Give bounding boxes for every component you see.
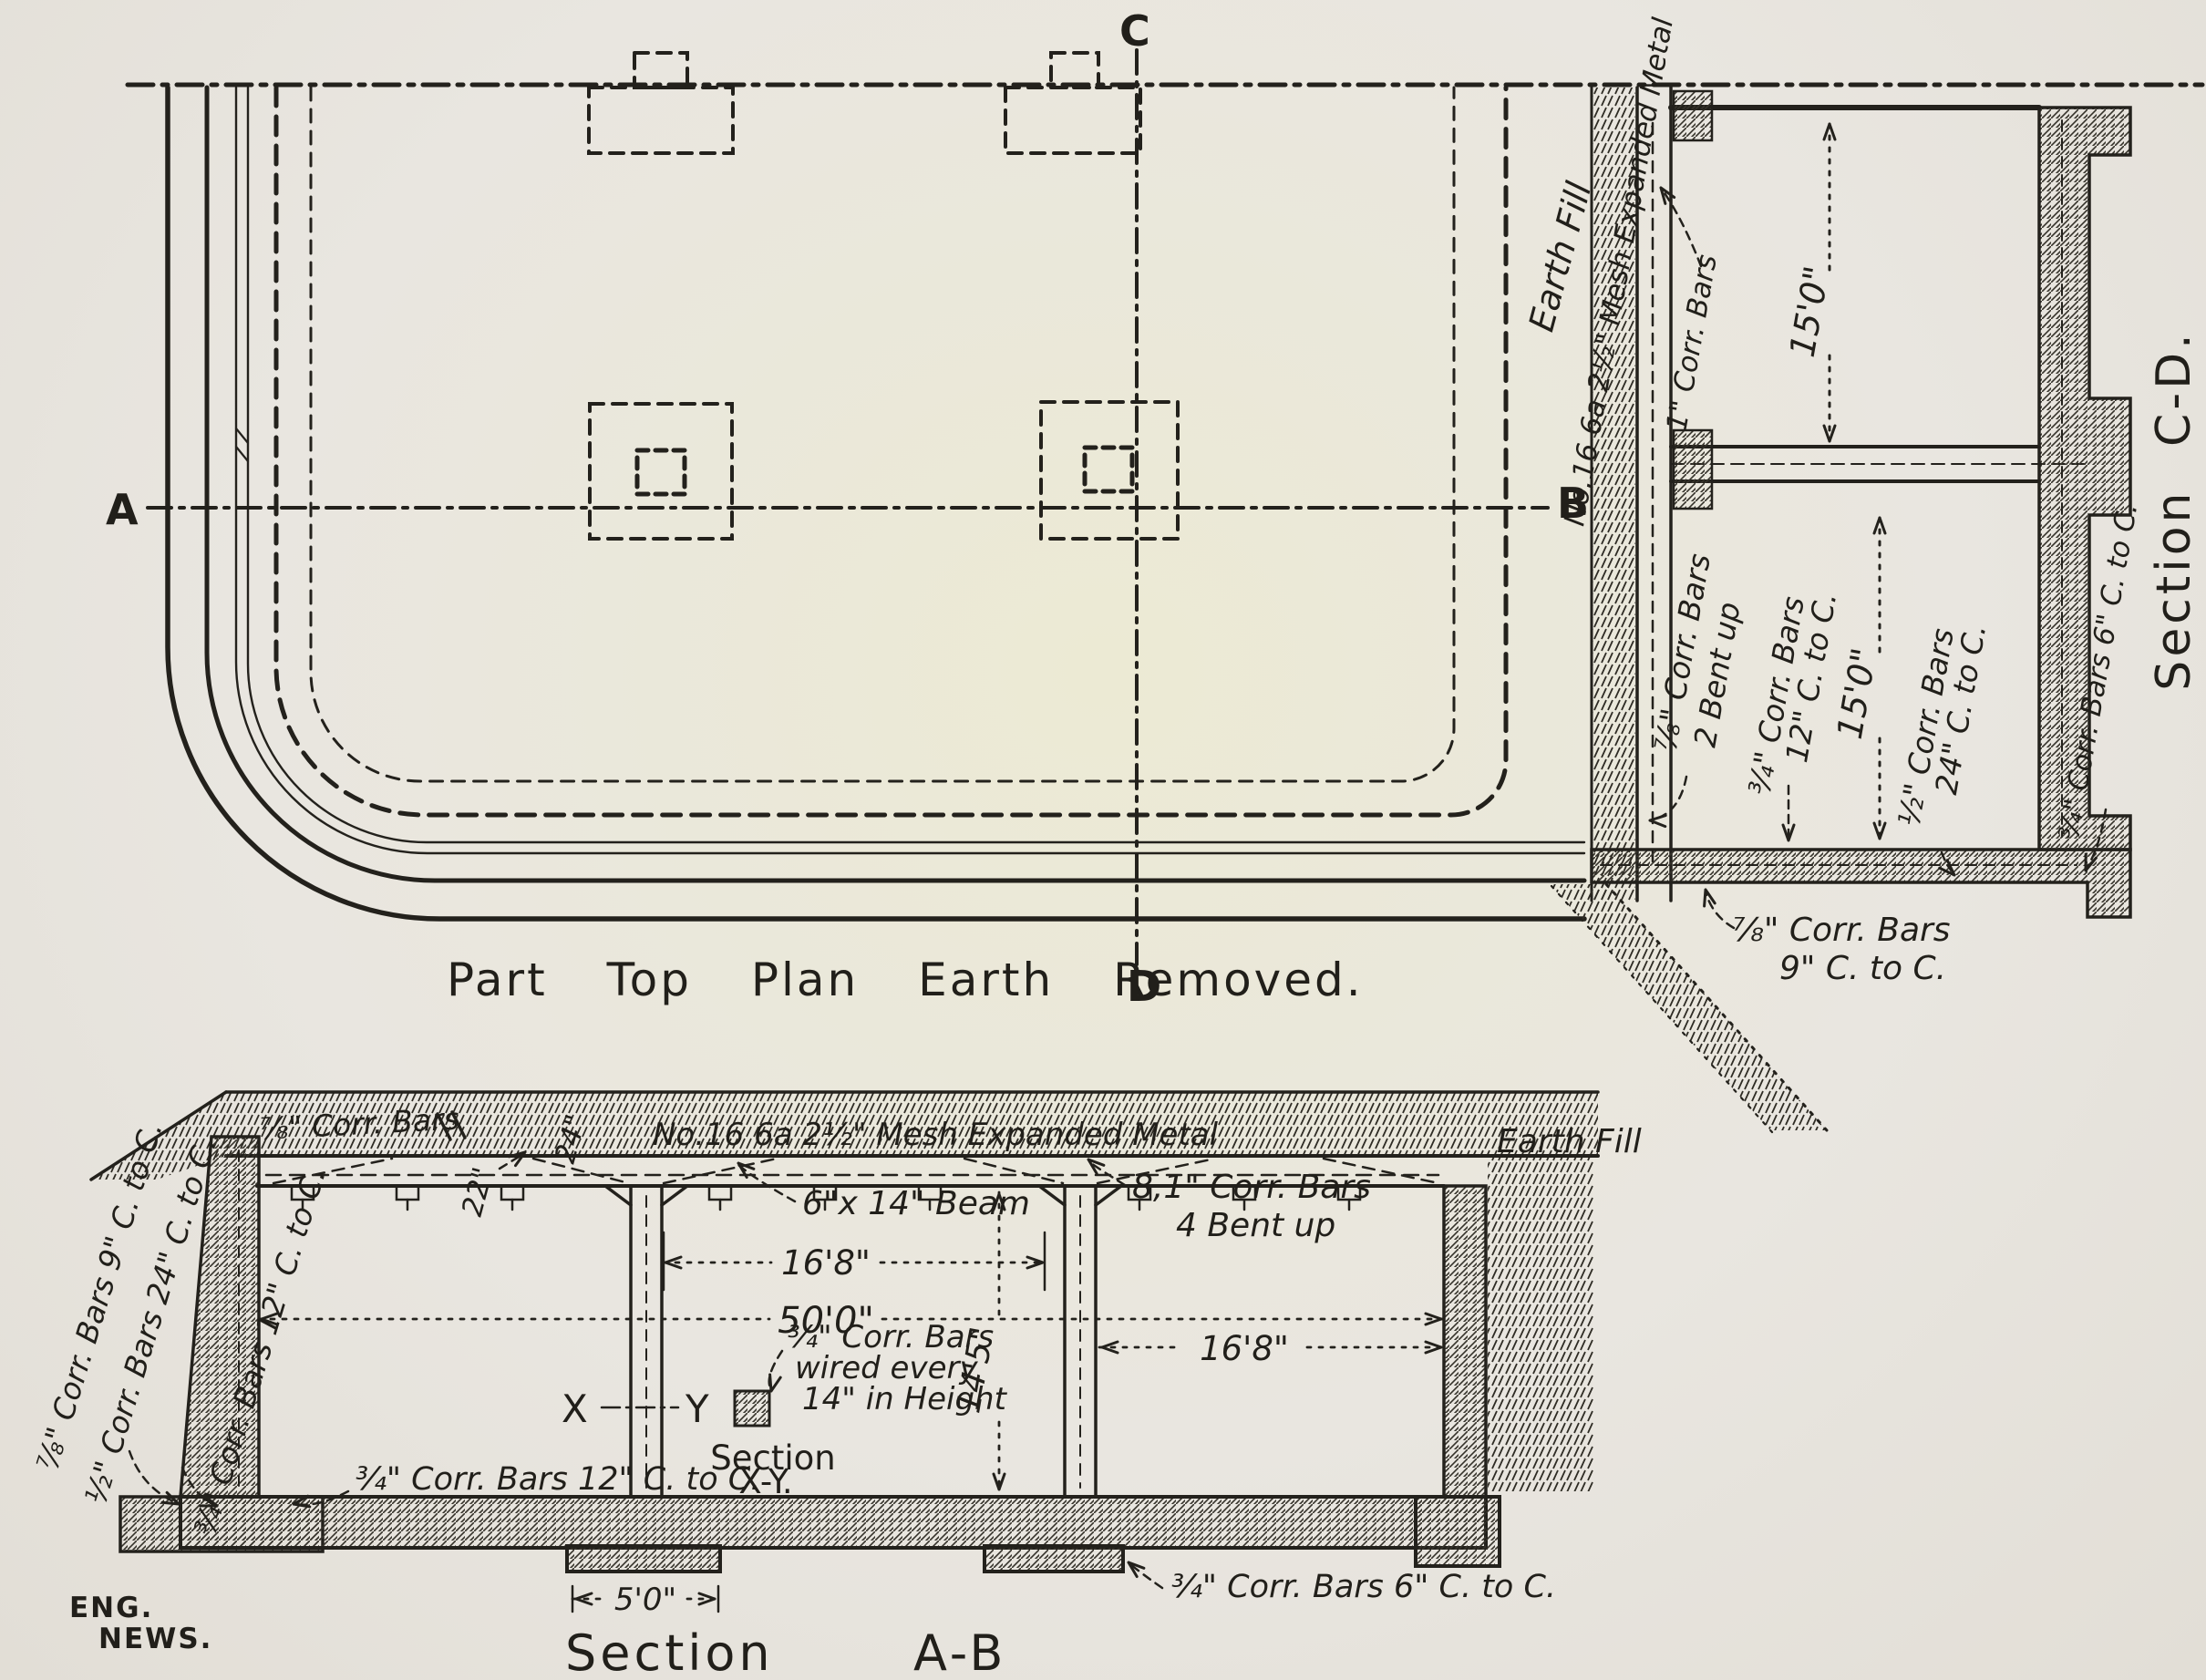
wall-outer-line — [168, 88, 1584, 919]
joint-jog — [236, 428, 248, 461]
cd-dim-15-top: 15'0" — [1782, 263, 1838, 360]
beam-section — [1674, 91, 1712, 140]
right-wall — [1444, 1186, 1486, 1497]
ab-marker-x: X — [562, 1386, 588, 1431]
ab-81-bars-label: 8,1" Corr. Bars — [1132, 1169, 1371, 1206]
ab-floor-34-12-label: ¾" Corr. Bars 12" C. to C. — [356, 1461, 760, 1498]
ab-dim-22: 22" — [456, 1164, 500, 1220]
marker-d: D — [1127, 962, 1163, 1011]
ab-dim-168-mid: 16'8" — [781, 1243, 871, 1283]
ab-title: Section — [565, 1624, 774, 1680]
column-footing — [567, 1546, 720, 1572]
earth-fill-right — [1488, 1156, 1593, 1491]
cd-dim-15-bottom: 15'0" — [1830, 644, 1885, 742]
credit-eng-news: NEWS. — [98, 1623, 212, 1655]
wall-inner-dashed-thin — [311, 88, 1454, 781]
credit-eng-news: ENG. — [69, 1592, 153, 1624]
wall-line-2 — [207, 88, 1584, 881]
south-wall — [1592, 850, 2130, 917]
drawing-sheet: Part Top Plan Earth Removed. C D A B Ear… — [0, 0, 2206, 1680]
marker-c: C — [1119, 6, 1152, 56]
column-footing — [984, 1546, 1123, 1572]
floor-slab — [180, 1497, 1486, 1548]
ab-beam-label: 6"x 14" Beam — [802, 1185, 1030, 1222]
column-footing — [589, 53, 1140, 153]
beam-section — [1674, 430, 1712, 509]
ab-floor-34-6-label: ¾" Corr. Bars 6" C. to C. — [1171, 1569, 1556, 1605]
wall-inner-dashed-thick — [276, 88, 1506, 815]
marker-a: A — [106, 485, 140, 534]
cd-earth-fill-label: Earth Fill — [1521, 178, 1600, 336]
ab-wired-label: 14" in Height — [802, 1381, 1008, 1417]
reservoir-drawing: Part Top Plan Earth Removed. C D A B Ear… — [0, 0, 2206, 1680]
ab-title: A-B — [913, 1624, 1006, 1680]
ab-earth-fill-label: Earth Fill — [1497, 1123, 1642, 1160]
column-footing — [590, 402, 1178, 539]
ab-dim-168-right: 16'8" — [1200, 1329, 1289, 1368]
wall-line-3 — [236, 88, 1584, 853]
ab-81-bars-label: 4 Bent up — [1176, 1207, 1335, 1244]
cd-78-9-label: ⅞" Corr. Bars — [1732, 912, 1951, 949]
column-section-detail — [735, 1391, 769, 1426]
right-wall-footing — [1416, 1497, 1500, 1566]
linework — [91, 50, 2202, 1612]
plan-view — [128, 50, 2202, 964]
wall-line-4 — [248, 88, 1584, 842]
cd-78-9-label: 9" C. to C. — [1779, 950, 1946, 987]
leader-line — [1650, 188, 2106, 928]
cd-title: Section C-D. — [2147, 330, 2201, 690]
ab-mesh-label: No.16 6a 2½" Mesh Expanded Metal — [653, 1117, 1219, 1153]
ab-dim-5ft: 5'0" — [614, 1582, 676, 1618]
plan-title: Part Top Plan Earth Removed. — [447, 953, 1364, 1006]
ab-marker-y: Y — [685, 1386, 709, 1431]
column-stub — [637, 448, 1132, 494]
